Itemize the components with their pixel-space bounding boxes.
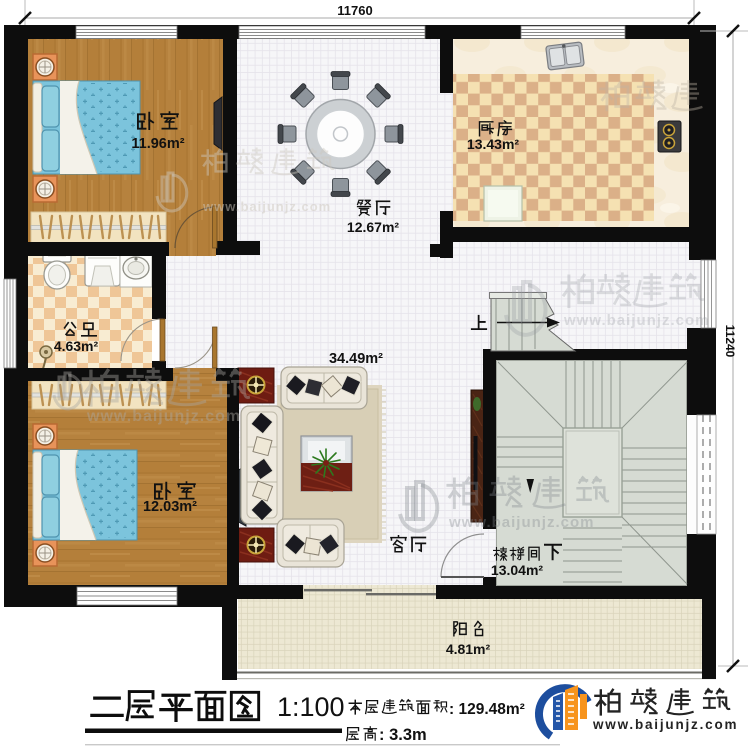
- svg-text:12.03m²: 12.03m²: [143, 499, 197, 515]
- svg-text:11.96m²: 11.96m²: [131, 136, 184, 152]
- svg-text:4.63m²: 4.63m²: [54, 338, 99, 354]
- svg-text:12.67m²: 12.67m²: [347, 219, 399, 235]
- svg-text:www.baijunjz.com: www.baijunjz.com: [448, 514, 594, 531]
- svg-text:: 129.48m²: : 129.48m²: [449, 701, 525, 718]
- svg-text:www.baijunjz.com: www.baijunjz.com: [86, 408, 241, 425]
- svg-text:34.49m²: 34.49m²: [329, 351, 383, 367]
- svg-text:www.baijunjz.com: www.baijunjz.com: [563, 312, 709, 329]
- svg-text:13.04m²: 13.04m²: [491, 562, 543, 578]
- svg-text:: 3.3m: : 3.3m: [379, 726, 427, 744]
- svg-text:www.baijunjz.com: www.baijunjz.com: [202, 199, 331, 214]
- svg-text:11760: 11760: [337, 3, 372, 18]
- svg-text:11240: 11240: [723, 325, 737, 358]
- svg-text:4.81m²: 4.81m²: [446, 641, 491, 657]
- svg-text:1:100: 1:100: [277, 692, 345, 722]
- svg-text:13.43m²: 13.43m²: [467, 136, 519, 152]
- svg-text:www.baijunjz.com: www.baijunjz.com: [592, 717, 738, 732]
